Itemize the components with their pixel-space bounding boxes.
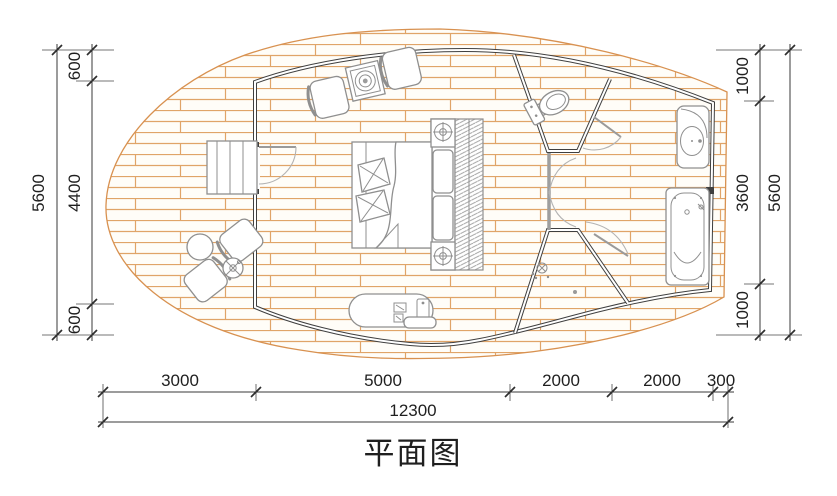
floor-drain [573, 290, 577, 294]
vanity-group [677, 106, 709, 168]
knob-dot [422, 302, 425, 305]
outdoor-round-table [187, 234, 213, 260]
tub-jet [674, 197, 676, 199]
tub-jet [700, 197, 702, 199]
headboard-panel [433, 150, 453, 193]
bathtub-group [666, 188, 709, 285]
double-bed-group [352, 119, 483, 270]
dim-left-seg-4400: 4400 [65, 174, 84, 212]
dim-left-seg-600-bottom: 600 [65, 306, 84, 334]
dim-left-total: 5600 [29, 174, 48, 212]
dim-right-seg-1000-bottom: 1000 [733, 291, 752, 329]
tub-jet [700, 275, 702, 277]
dim-bottom-total: 12300 [389, 401, 436, 420]
entry-steps [207, 141, 257, 194]
dim-left-seg-600-top: 600 [65, 52, 84, 80]
dim-bottom-3000: 3000 [161, 371, 199, 390]
drawing-title: 平面图 [364, 436, 463, 471]
tub-jet [674, 275, 676, 277]
dim-bottom-5000: 5000 [364, 371, 402, 390]
vanity-sink [677, 106, 709, 168]
drain-dot [691, 140, 693, 142]
tv-bench-group [349, 294, 436, 328]
dim-bottom-2000-a: 2000 [542, 371, 580, 390]
dim-bottom-2000-b: 2000 [643, 371, 681, 390]
faucet-dot [698, 139, 702, 143]
water-dot [535, 277, 537, 279]
bench-tray [404, 317, 436, 328]
water-dot [547, 276, 549, 278]
dim-bottom-300: 300 [707, 371, 735, 390]
floor-plan-canvas: 5600 600 4400 600 1000 3600 1000 5600 30… [0, 0, 837, 496]
dim-right-seg-1000-top: 1000 [733, 57, 752, 95]
dim-right-total: 5600 [765, 174, 784, 212]
dim-right-seg-3600: 3600 [733, 174, 752, 212]
floor-plan-page: 5600 600 4400 600 1000 3600 1000 5600 30… [0, 0, 837, 496]
bathtub [666, 188, 709, 285]
headboard-panel [433, 196, 453, 240]
water-dot [532, 273, 534, 275]
